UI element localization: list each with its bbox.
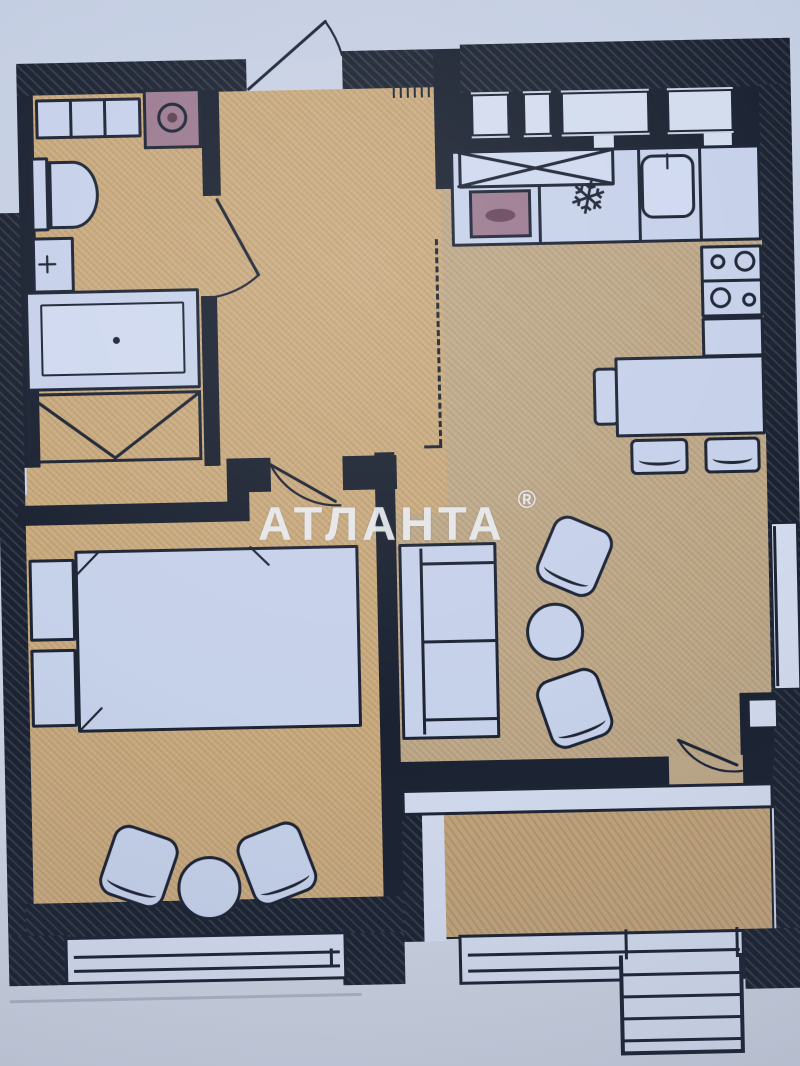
watermark-text: АТЛАНТА	[258, 497, 506, 550]
watermark: АТЛАНТА ®	[258, 496, 558, 570]
bathroom-door-arc	[207, 275, 259, 298]
floor-plan-photo: ❄	[0, 0, 800, 1066]
shower-v-lines	[31, 394, 198, 459]
faucet-cross-icon	[39, 256, 55, 272]
registered-trademark-icon: ®	[518, 486, 536, 515]
bed-fold-marks	[76, 547, 272, 731]
x-cabinet-cross	[458, 149, 613, 186]
entrance-door-arc	[325, 21, 342, 55]
bathroom-door-leaf	[217, 199, 259, 276]
entrance-door-leaf	[247, 21, 326, 89]
